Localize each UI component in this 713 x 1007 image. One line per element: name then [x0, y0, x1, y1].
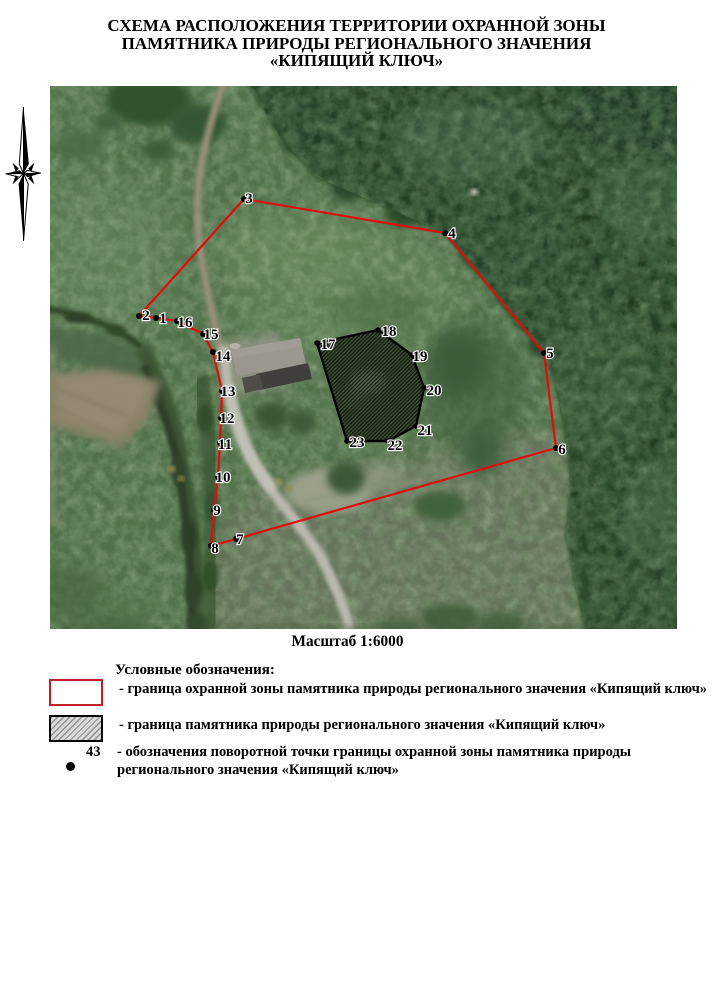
svg-text:17: 17: [321, 337, 337, 353]
svg-text:1: 1: [159, 311, 167, 327]
svg-text:5: 5: [546, 346, 554, 362]
svg-text:14: 14: [216, 349, 232, 365]
svg-text:19: 19: [413, 349, 428, 365]
svg-text:15: 15: [204, 327, 219, 343]
svg-text:4: 4: [448, 226, 456, 242]
svg-text:13: 13: [221, 384, 236, 400]
svg-text:8: 8: [211, 541, 219, 557]
svg-text:12: 12: [220, 411, 235, 427]
svg-text:2: 2: [142, 308, 150, 324]
svg-text:23: 23: [350, 435, 365, 451]
svg-text:22: 22: [388, 438, 403, 454]
svg-text:18: 18: [382, 324, 397, 340]
svg-text:10: 10: [216, 470, 231, 486]
svg-text:16: 16: [178, 315, 194, 331]
svg-text:20: 20: [427, 383, 442, 399]
svg-text:9: 9: [213, 503, 221, 519]
svg-text:6: 6: [558, 442, 566, 458]
svg-text:7: 7: [236, 532, 244, 548]
svg-text:11: 11: [218, 437, 232, 453]
svg-text:21: 21: [418, 423, 433, 439]
svg-text:3: 3: [245, 191, 253, 207]
